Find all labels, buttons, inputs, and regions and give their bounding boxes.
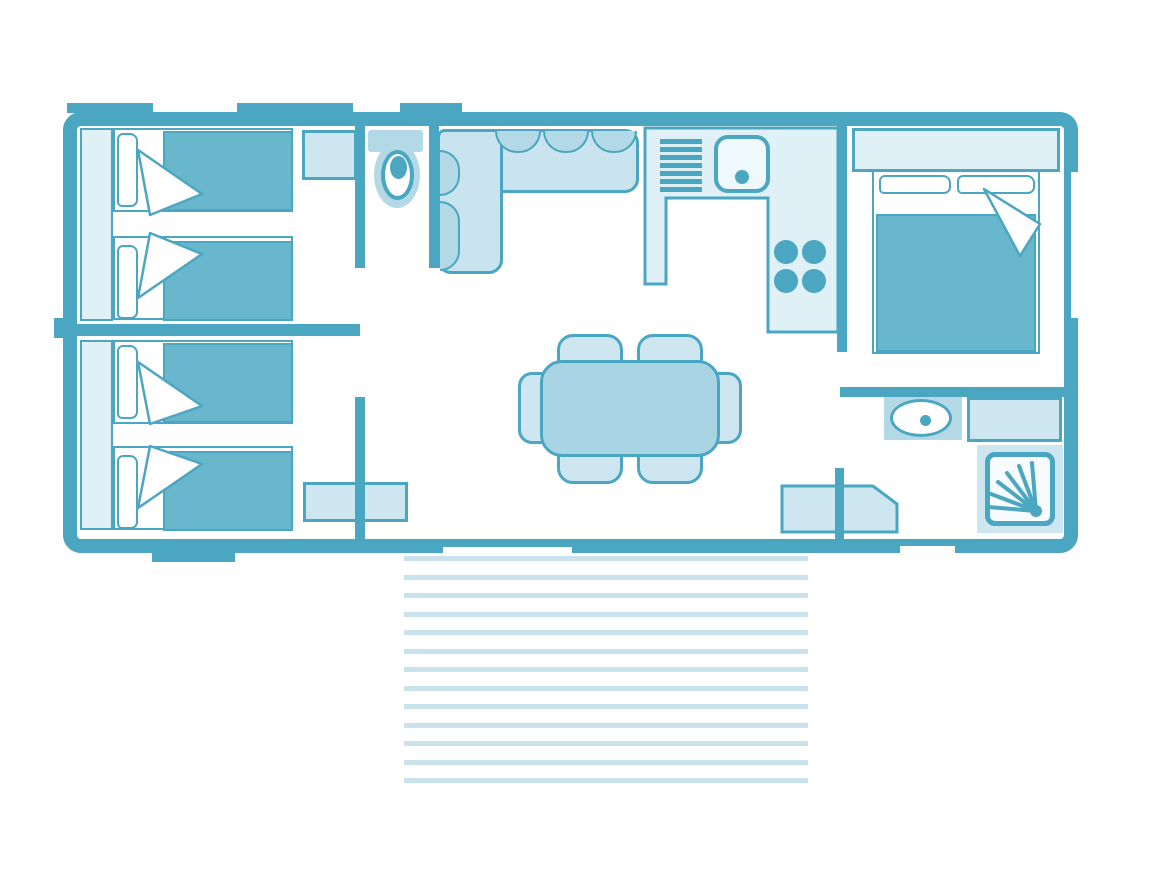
floor-plan: [0, 0, 1160, 870]
floorplan-details: [0, 0, 1160, 870]
interior-wall: [63, 324, 360, 336]
shower-drain: [1030, 505, 1042, 517]
interior-wall: [840, 387, 1064, 397]
blanket-fold: [138, 446, 202, 508]
interior-wall: [355, 126, 365, 268]
sink-drain: [735, 170, 749, 184]
blanket-fold: [138, 150, 202, 215]
interior-wall: [835, 468, 844, 539]
interior-wall: [355, 397, 365, 539]
blanket-fold: [984, 189, 1040, 256]
interior-wall: [837, 126, 847, 352]
blanket-fold: [138, 233, 202, 298]
shower-spray-icon: [988, 463, 1036, 511]
interior-wall: [429, 126, 439, 268]
blanket-fold: [138, 362, 202, 424]
